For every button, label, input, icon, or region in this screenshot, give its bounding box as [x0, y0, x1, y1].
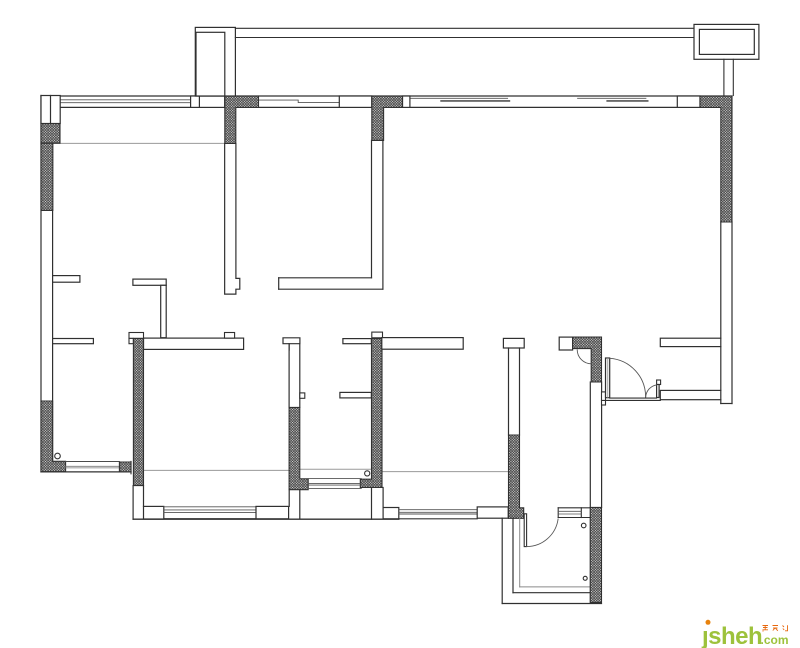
svg-text:.com: .com	[761, 633, 789, 647]
